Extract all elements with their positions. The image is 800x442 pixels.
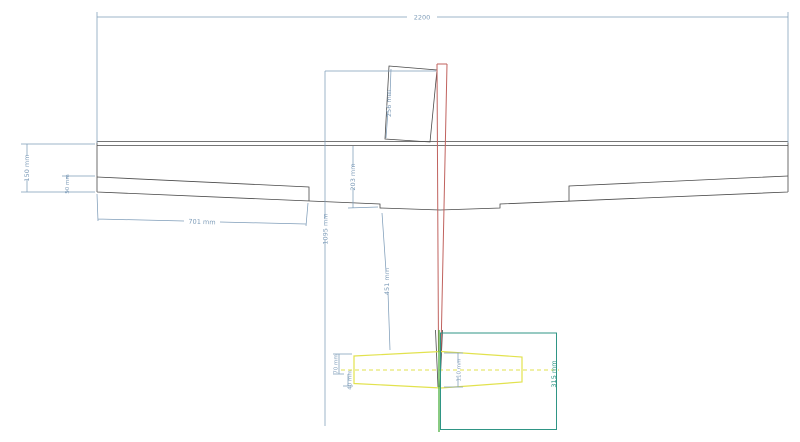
dim-label-wingspan: 2200 <box>414 14 431 22</box>
dim-wingspan-lines <box>97 12 788 143</box>
dim-tip-chord: 150 mm <box>21 144 95 192</box>
dim-aileron-span: 701 mm <box>97 194 308 226</box>
left-aileron-outline <box>97 177 309 201</box>
stabilizer-layer <box>341 352 559 389</box>
dim-label-root-chord: 203 mm <box>349 163 357 190</box>
dim-fuselage-length-lines <box>325 71 436 426</box>
dim-label-aileron-tip-chord: 50 mm <box>65 174 71 193</box>
dim-label-stab-front: 70 mm <box>334 354 340 373</box>
dim-elevator-chord: 40 mm <box>343 370 354 389</box>
fuselage-layer <box>437 64 447 351</box>
dim-nose-section: 256 mm <box>385 69 393 138</box>
dim-label-aileron-span: 701 mm <box>188 218 215 227</box>
dim-root-chord: 203 mm <box>348 146 378 208</box>
dimension-layer: 2200 150 mm 50 mm 701 mm 1095 mm 256 mm <box>21 12 788 426</box>
wing-outline <box>97 142 788 211</box>
dim-label-stab-root-chord: 110 mm <box>457 359 463 382</box>
dim-tip-chord-lines <box>21 144 95 192</box>
dim-label-fuselage-length: 1095 mm <box>322 213 330 244</box>
dim-wingspan: 2200 <box>97 12 788 143</box>
drawing-canvas: 315 mm 2200 150 mm 50 mm 701 mm <box>0 0 800 442</box>
dim-label-tail-box-height: 315 mm <box>550 360 558 387</box>
dim-label-tip-chord: 150 mm <box>23 154 31 181</box>
dim-label-nose-section: 256 mm <box>385 90 393 117</box>
airframe-outline-layer <box>97 66 788 387</box>
dim-wing-to-tail: 451 mm <box>382 213 391 350</box>
planform-drawing: 315 mm 2200 150 mm 50 mm 701 mm <box>0 0 800 442</box>
dim-label-wing-to-tail: 451 mm <box>383 268 391 295</box>
right-aileron-outline <box>569 176 788 201</box>
dimension-group: 2200 150 mm 50 mm 701 mm 1095 mm 256 mm <box>21 12 788 426</box>
dim-label-elevator-chord: 40 mm <box>348 370 354 389</box>
dim-aileron-tip-chord: 50 mm <box>62 174 95 193</box>
fuselage-outline <box>437 64 447 351</box>
